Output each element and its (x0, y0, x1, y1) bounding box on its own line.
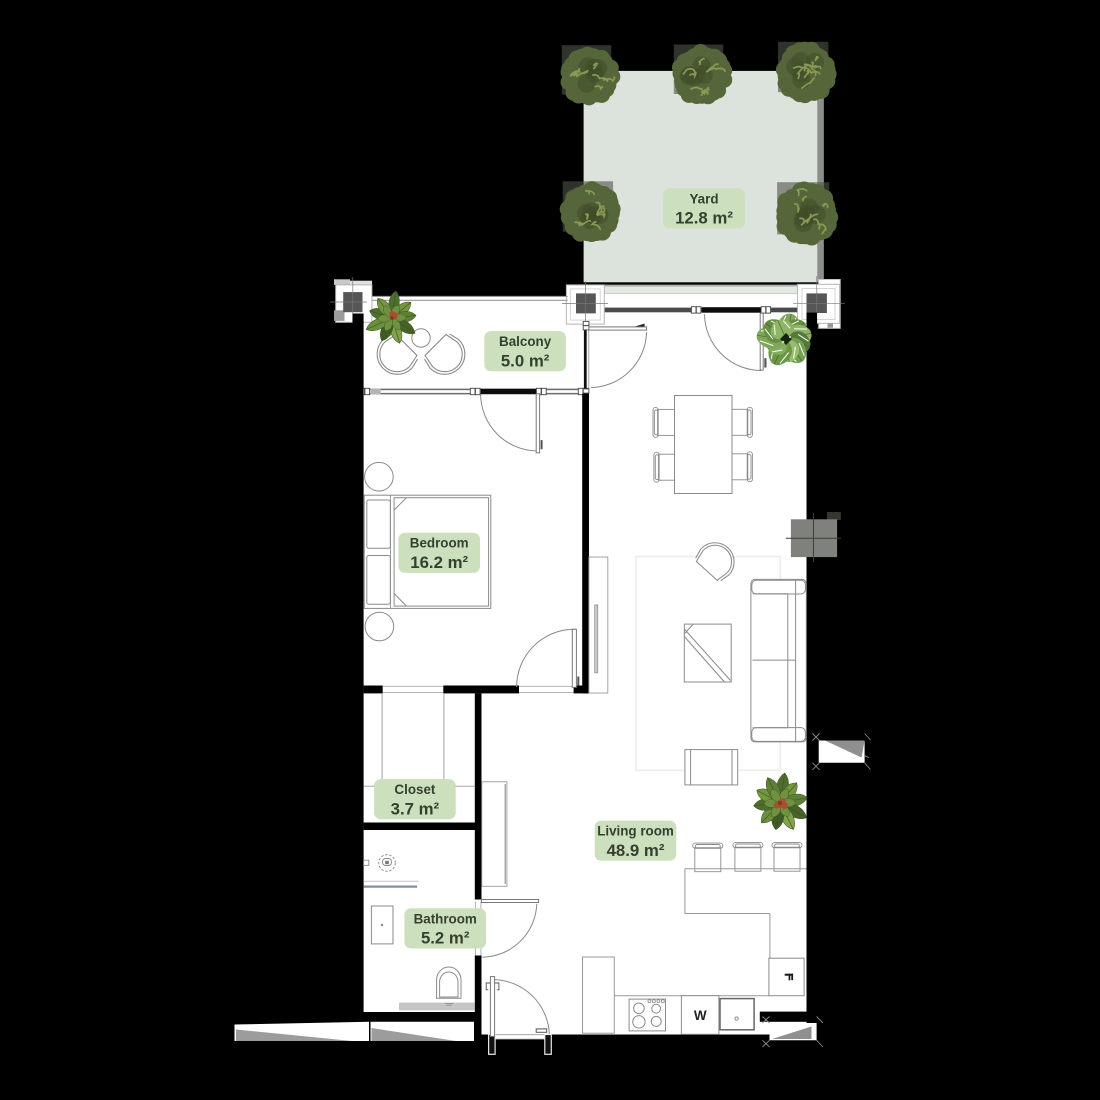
svg-text:3.7 m²: 3.7 m² (391, 799, 440, 818)
svg-text:48.9 m²: 48.9 m² (607, 841, 665, 860)
svg-text:5.2 m²: 5.2 m² (421, 929, 470, 948)
svg-text:W: W (694, 1008, 707, 1023)
svg-text:Closet: Closet (394, 782, 435, 797)
svg-text:Living room: Living room (597, 824, 674, 839)
svg-text:5.0 m²: 5.0 m² (501, 351, 550, 370)
svg-text:16.2 m²: 16.2 m² (410, 553, 468, 572)
svg-text:Bedroom: Bedroom (410, 536, 469, 551)
svg-text:Bathroom: Bathroom (414, 911, 477, 926)
svg-text:Yard: Yard (689, 191, 718, 206)
svg-text:12.8 m²: 12.8 m² (675, 209, 733, 228)
svg-text:Balcony: Balcony (499, 334, 552, 349)
